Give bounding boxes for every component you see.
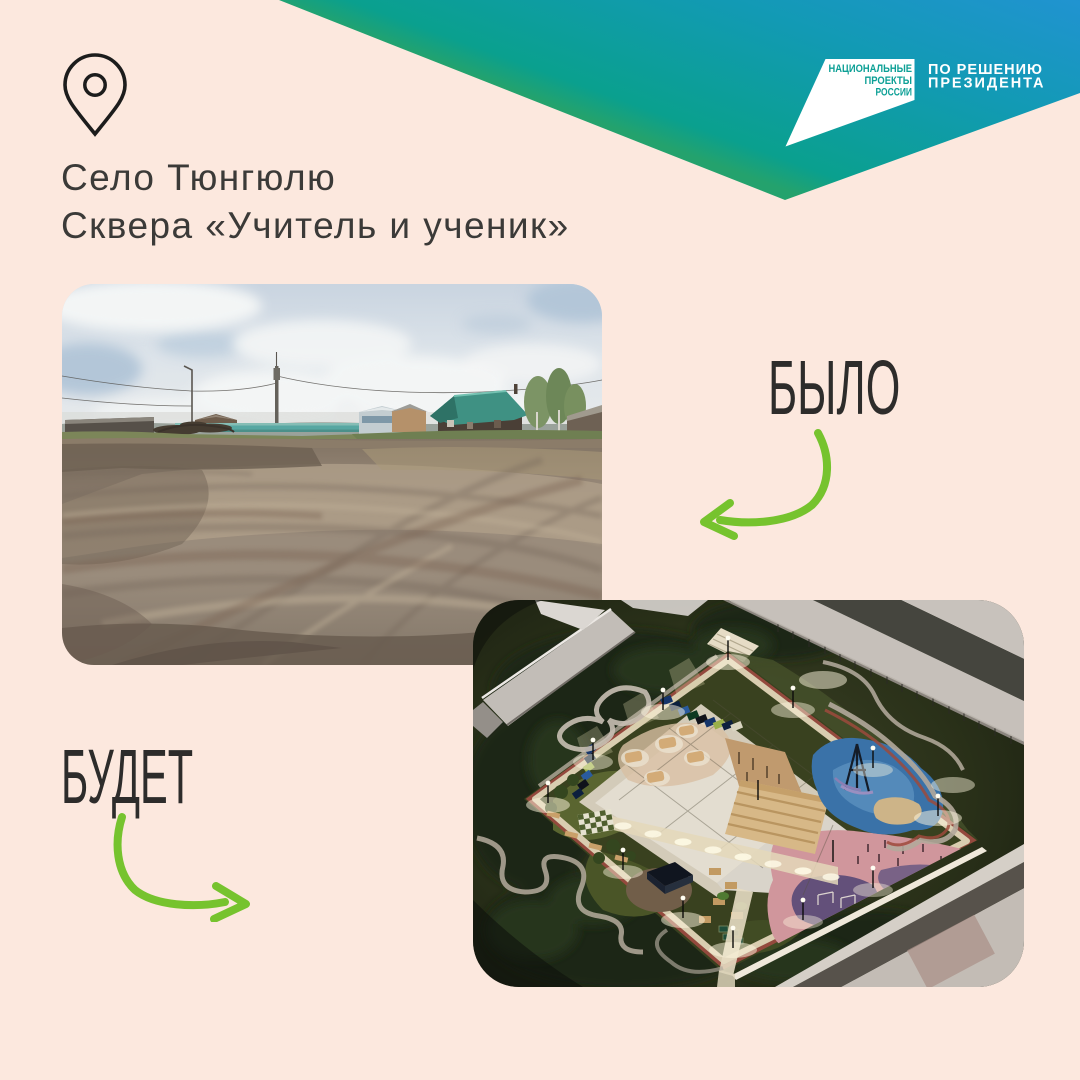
- svg-text:ПРОЕКТЫ: ПРОЕКТЫ: [865, 75, 913, 87]
- svg-text:РОССИИ: РОССИИ: [876, 87, 913, 99]
- svg-text:НАЦИОНАЛЬНЫЕ: НАЦИОНАЛЬНЫЕ: [829, 63, 913, 75]
- svg-text:ПРЕЗИДЕНТА: ПРЕЗИДЕНТА: [928, 76, 1044, 92]
